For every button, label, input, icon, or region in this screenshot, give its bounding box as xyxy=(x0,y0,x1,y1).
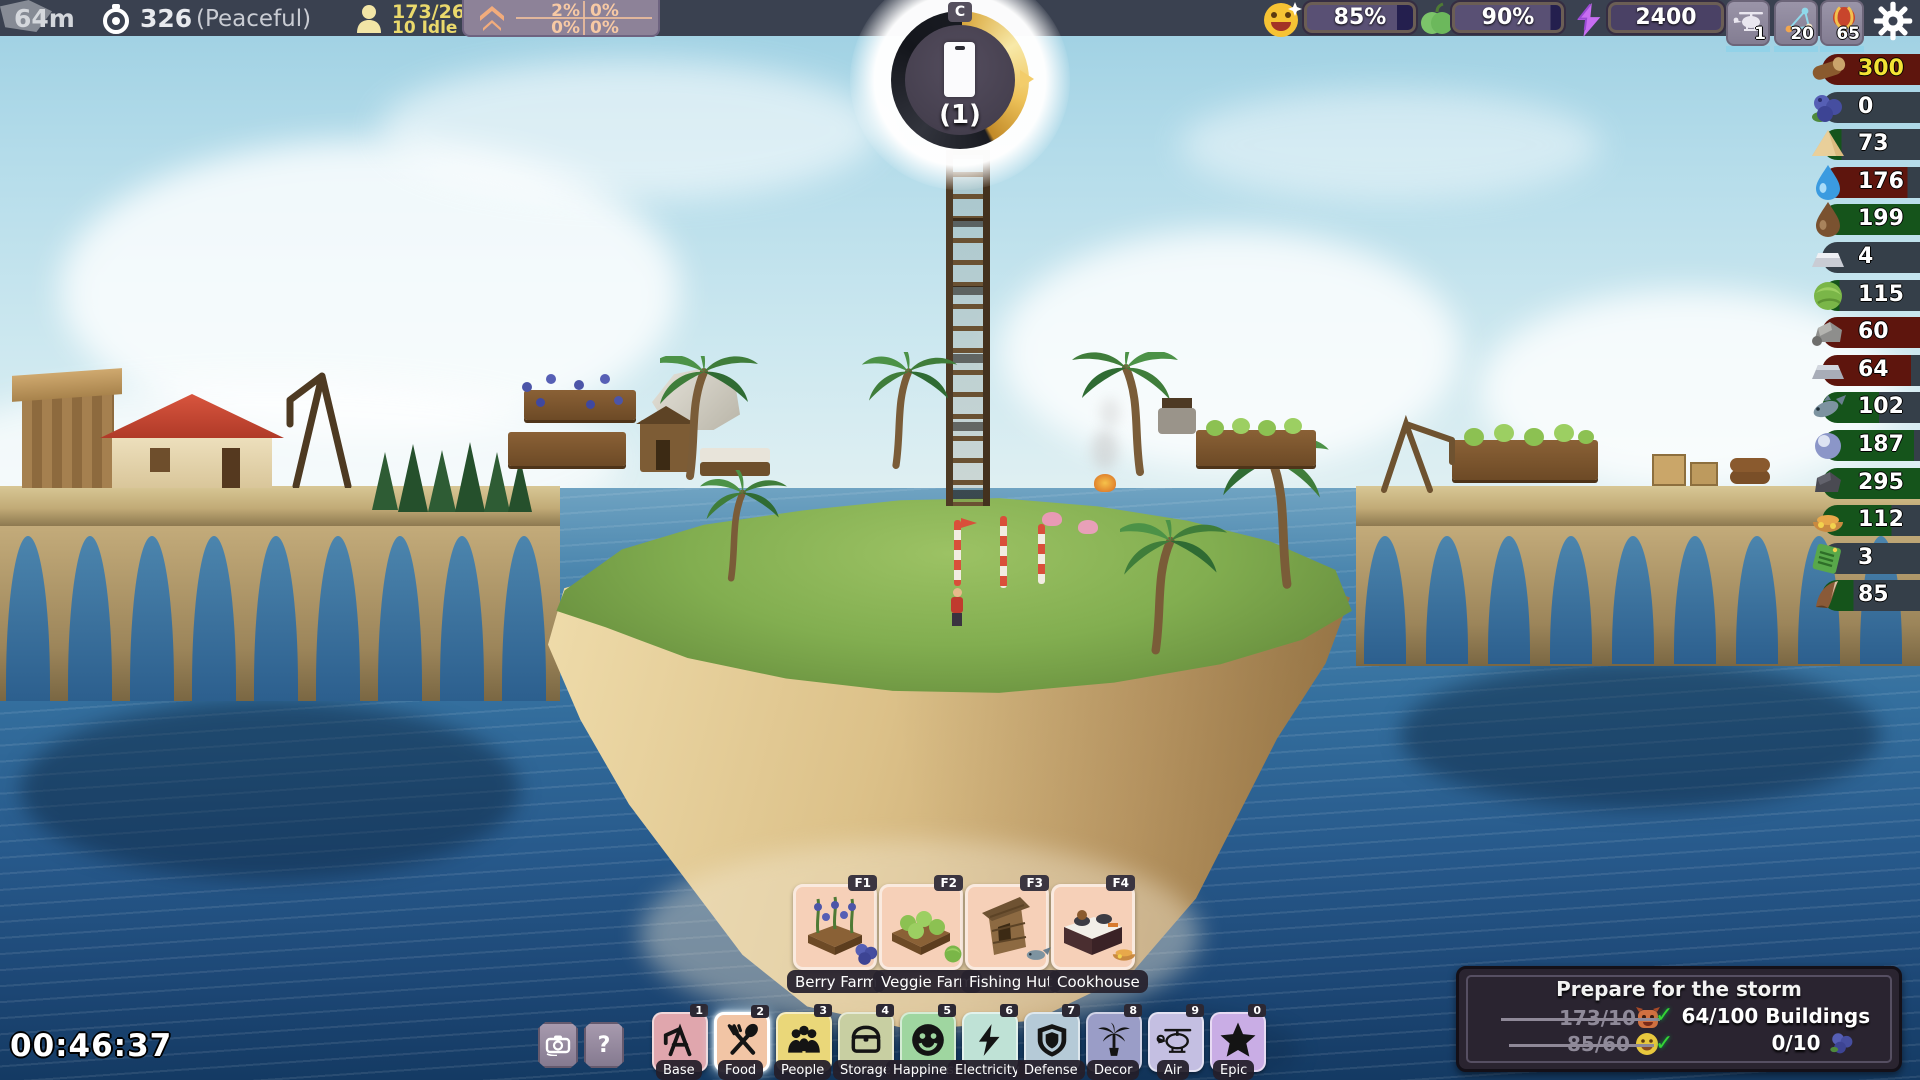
game-screen: 64m 326 (Peaceful) 173/260 10 Idle 2% 0%… xyxy=(0,0,1920,1080)
keybind-tag: F1 xyxy=(848,875,877,891)
resource-row-horn[interactable]: 85 xyxy=(1814,580,1920,611)
happiness-bar[interactable]: 85% xyxy=(1304,2,1416,33)
keybind-tag: F2 xyxy=(934,875,963,891)
storm-req-done-2: 85/60 xyxy=(1567,1032,1630,1056)
altitude-value: 64m xyxy=(14,4,75,33)
electricity-bolt-icon xyxy=(971,1021,1009,1059)
resource-row-stone[interactable]: 60 xyxy=(1814,317,1920,348)
epic-star-icon xyxy=(1218,1020,1258,1060)
blueberries-badge-icon xyxy=(852,939,880,971)
cooked-meal-icon xyxy=(1808,500,1848,540)
building-label: Cookhouse xyxy=(1049,970,1148,993)
helicopter-count: 1 xyxy=(1754,24,1766,44)
keybind-tag: 6 xyxy=(1000,1004,1018,1017)
palm-tree xyxy=(1120,520,1250,670)
resource-value: 73 xyxy=(1858,131,1889,156)
berry-plants xyxy=(516,372,636,432)
power-bar[interactable]: 2400 xyxy=(1608,2,1724,33)
berry-planter[interactable] xyxy=(508,432,626,466)
cabbages xyxy=(1460,422,1596,452)
sand-icon xyxy=(1808,124,1848,164)
population-icon xyxy=(354,3,384,35)
category-label: Base xyxy=(656,1060,702,1080)
resource-value: 0 xyxy=(1858,94,1873,119)
helicopter-count-button[interactable]: 1 xyxy=(1726,0,1770,46)
stopwatch-icon xyxy=(100,3,132,35)
food-utensils-icon xyxy=(723,1021,761,1059)
category-label: Electricity xyxy=(948,1060,1027,1080)
cloud xyxy=(1180,90,1600,200)
building-label: Fishing Hut xyxy=(961,970,1061,993)
wood-log-icon xyxy=(1808,49,1848,89)
fish-icon xyxy=(1808,387,1848,427)
keybind-tag: 0 xyxy=(1248,1004,1266,1017)
striped-pole xyxy=(954,520,961,586)
coal-icon xyxy=(1808,463,1848,503)
dock-crane[interactable] xyxy=(1372,414,1462,494)
water-reflection xyxy=(20,700,520,880)
happiness-smiley-icon xyxy=(909,1021,947,1059)
horn-icon xyxy=(1808,575,1848,615)
storm-panel: Prepare for the storm 173/10 85/60 ✓ 64/… xyxy=(1456,966,1902,1072)
house-wall[interactable] xyxy=(112,432,272,488)
mode-label: (Peaceful) xyxy=(196,6,311,32)
resource-row-mud[interactable]: 199 xyxy=(1814,204,1920,235)
food-value: 90% xyxy=(1482,5,1535,30)
keybind-tag: 3 xyxy=(814,1004,832,1017)
happiness-value: 85% xyxy=(1334,5,1387,30)
keybind-tag: 1 xyxy=(690,1004,708,1017)
resource-row-cabbage[interactable]: 115 xyxy=(1814,280,1920,311)
resource-row-iron[interactable]: 64 xyxy=(1814,355,1920,386)
iron-ingot-icon xyxy=(1808,350,1848,390)
building-card-fishing-hut[interactable]: F3 xyxy=(965,884,1049,970)
resource-value: 3 xyxy=(1858,545,1873,570)
resource-row-water[interactable]: 176 xyxy=(1814,167,1920,198)
power-bolt-icon xyxy=(1572,1,1606,39)
water-drop-icon xyxy=(1808,162,1848,202)
storm-req-todo-1: ✓ 64/100 Buildings xyxy=(1655,1003,1870,1028)
striped-pole xyxy=(1038,524,1045,584)
log-pile xyxy=(1730,458,1770,472)
storm-req-todo-2: ✓ 0/10 xyxy=(1655,1030,1855,1056)
cabbage-icon xyxy=(1808,275,1848,315)
category-label: Defense xyxy=(1017,1060,1085,1080)
keybind-tag: F4 xyxy=(1106,875,1135,891)
left-bridge-arches xyxy=(0,526,560,701)
bird xyxy=(1042,512,1062,526)
settings-gear-icon[interactable] xyxy=(1872,0,1914,42)
day-counter: 326 xyxy=(140,4,192,33)
keybind-tag: 5 xyxy=(938,1004,956,1017)
keybind-tag: F3 xyxy=(1020,875,1049,891)
resource-value: 187 xyxy=(1858,432,1904,457)
help-label: ? xyxy=(598,1033,611,1058)
happiness-emoji-icon xyxy=(1262,0,1302,40)
category-label: People xyxy=(774,1060,831,1080)
camera-icon xyxy=(545,1034,571,1056)
circuit-board-icon xyxy=(1808,538,1848,578)
power-value: 2400 xyxy=(1635,5,1696,30)
striped-pole xyxy=(1000,516,1007,588)
smoke xyxy=(1100,398,1120,428)
resource-value: 295 xyxy=(1858,470,1904,495)
keybind-tag: 4 xyxy=(876,1004,894,1017)
cloud xyxy=(380,60,880,200)
building-card-berry-farm[interactable]: F1 xyxy=(793,884,877,970)
resource-row-blueberries[interactable]: 0 xyxy=(1814,92,1920,123)
wooden-crane[interactable] xyxy=(282,366,366,488)
resource-row-silver[interactable]: 4 xyxy=(1814,242,1920,273)
resource-value: 60 xyxy=(1858,319,1889,344)
crate xyxy=(1652,454,1686,486)
blueberries-req-icon xyxy=(1829,1030,1855,1056)
blueberries-icon xyxy=(1808,87,1848,127)
upgrade-chevrons-icon xyxy=(476,4,508,32)
network-count: 20 xyxy=(1790,24,1814,44)
stone-icon xyxy=(1808,312,1848,352)
category-label: Decor xyxy=(1087,1060,1139,1080)
network-count-button[interactable]: 20 xyxy=(1774,0,1818,46)
villager[interactable] xyxy=(950,588,964,628)
storage-chest-icon xyxy=(847,1021,885,1059)
resource-value: 102 xyxy=(1858,394,1904,419)
resource-row-pearl[interactable]: 187 xyxy=(1814,430,1920,461)
defense-shield-icon xyxy=(1033,1021,1071,1059)
balloon-count: 65 xyxy=(1836,24,1860,44)
base-crane-icon xyxy=(661,1021,699,1059)
growth-bl: 0% xyxy=(516,18,580,38)
resource-value: 176 xyxy=(1858,169,1904,194)
check-icon: ✓ xyxy=(1655,1003,1673,1028)
resource-value: 85 xyxy=(1858,582,1889,607)
keybind-tag: 7 xyxy=(1062,1004,1080,1017)
palm-tree xyxy=(660,356,770,486)
resource-value: 4 xyxy=(1858,244,1873,269)
keybind-tag: 9 xyxy=(1186,1004,1204,1017)
resource-value: 112 xyxy=(1858,507,1904,532)
session-timer: 00:46:37 xyxy=(10,1028,172,1064)
smoke xyxy=(1092,430,1118,470)
well[interactable] xyxy=(1158,408,1196,434)
keybind-tag: 8 xyxy=(1124,1004,1142,1017)
keybind-tag: 2 xyxy=(751,1005,769,1018)
resource-value: 115 xyxy=(1858,282,1904,307)
pearl-icon xyxy=(1808,425,1848,465)
monument-icon xyxy=(944,42,975,97)
balloon-count-button[interactable]: 65 xyxy=(1820,0,1864,46)
food-bar[interactable]: 90% xyxy=(1452,2,1564,33)
resource-row-sand[interactable]: 73 xyxy=(1814,129,1920,160)
palm-tree xyxy=(860,352,970,482)
gauge-keybind: C xyxy=(948,2,972,22)
resource-row-wood[interactable]: 300 xyxy=(1814,54,1920,85)
fish-badge-icon xyxy=(1024,943,1052,971)
building-label: Berry Farm xyxy=(787,970,885,993)
resource-value: 199 xyxy=(1858,206,1904,231)
air-helicopter-icon xyxy=(1156,1023,1196,1057)
cabbages xyxy=(1202,416,1312,442)
resource-row-coal[interactable]: 295 xyxy=(1814,468,1920,499)
silver-ingot-icon xyxy=(1808,237,1848,277)
building-card-veggie-farm[interactable]: F2 xyxy=(879,884,963,970)
storm-title: Prepare for the storm xyxy=(1459,977,1899,1001)
cabbage-badge-icon xyxy=(940,941,966,971)
growth-panel[interactable]: 2% 0% 0% 0% xyxy=(462,0,660,37)
resource-row-fish[interactable]: 102 xyxy=(1814,392,1920,423)
category-label: Epic xyxy=(1213,1060,1254,1080)
wood-shack[interactable] xyxy=(22,392,114,488)
crate xyxy=(1690,462,1718,486)
bird xyxy=(1078,520,1098,534)
idle-count: 10 Idle xyxy=(392,18,457,38)
charge-arrow-icon xyxy=(1020,70,1034,88)
resource-row-meal[interactable]: 112 xyxy=(1814,505,1920,536)
check-icon: ✓ xyxy=(1655,1031,1673,1056)
category-label: Food xyxy=(718,1060,763,1080)
decor-plant-icon xyxy=(1095,1021,1133,1059)
resource-row-circuit[interactable]: 3 xyxy=(1814,543,1920,574)
people-icon xyxy=(785,1021,823,1059)
gauge-count: (1) xyxy=(905,100,1015,130)
camera-button[interactable] xyxy=(538,1022,578,1068)
category-label: Air xyxy=(1157,1060,1189,1080)
growth-br: 0% xyxy=(590,18,650,38)
meal-badge-icon xyxy=(1110,943,1138,971)
house-door xyxy=(222,448,240,488)
resource-value: 300 xyxy=(1858,56,1904,81)
food-apple-icon xyxy=(1420,2,1454,38)
campfire xyxy=(1094,474,1116,492)
storm-req-done-1: 173/10 xyxy=(1559,1006,1636,1030)
building-card-cookhouse[interactable]: F4 xyxy=(1051,884,1135,970)
help-button[interactable]: ? xyxy=(584,1022,624,1068)
palm-tree xyxy=(700,470,810,600)
house-window xyxy=(150,448,170,472)
mud-drop-icon xyxy=(1808,199,1848,239)
water-reflection xyxy=(1400,660,1880,810)
resource-value: 64 xyxy=(1858,357,1889,382)
